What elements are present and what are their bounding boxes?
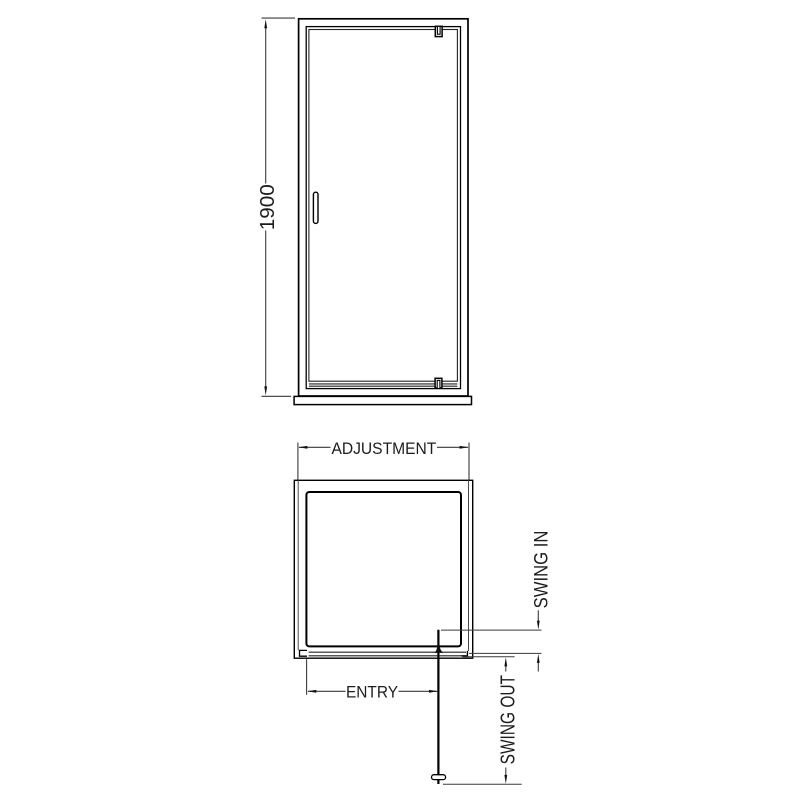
svg-text:ADJUSTMENT: ADJUSTMENT [331, 440, 436, 458]
svg-text:ENTRY: ENTRY [346, 683, 398, 701]
svg-text:1900: 1900 [257, 184, 279, 230]
svg-text:SWING OUT: SWING OUT [497, 675, 519, 764]
svg-text:SWING IN: SWING IN [531, 531, 553, 609]
